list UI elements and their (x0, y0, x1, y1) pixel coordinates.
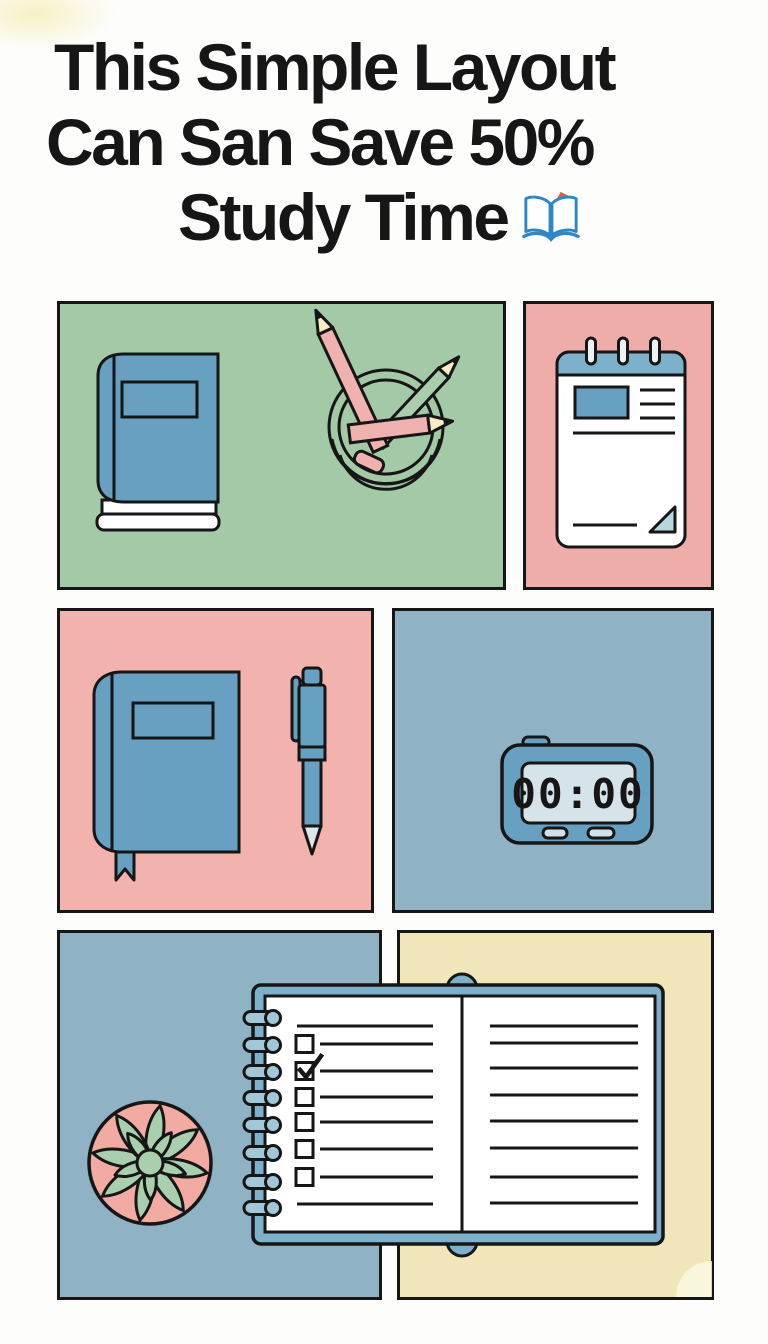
succulent-center (137, 1150, 163, 1176)
title-line-3-text: Study Time (178, 180, 508, 255)
panel-notepad (523, 301, 714, 590)
book-and-pencil-cup-illustration (60, 304, 503, 587)
timer-button-left (543, 828, 567, 838)
succulent-icon (89, 1102, 211, 1224)
pencil-cup-icon (309, 307, 464, 489)
book-label (122, 382, 197, 417)
pen-icon (292, 668, 325, 854)
pen-tip (303, 826, 321, 854)
open-book-emoji (522, 189, 580, 247)
digital-timer-illustration: 00:00 (395, 611, 711, 910)
title-line-3: Study Time (178, 180, 580, 255)
notepad-photo-block (575, 387, 628, 418)
journal-label (133, 703, 213, 738)
journal-and-pen-illustration (60, 611, 371, 910)
timer-button-right (588, 828, 614, 838)
journal-icon (94, 672, 239, 880)
bookmark-ribbon (116, 852, 134, 880)
panel-journal-and-pen (57, 608, 374, 913)
title-line-2: Can San Save 50% (46, 105, 593, 180)
panel-digital-timer: 00:00 (392, 608, 714, 913)
book-icon (97, 354, 219, 530)
panel-book-and-pencil-cup (57, 301, 506, 590)
title-line-1: This Simple Layout (54, 30, 614, 105)
notepad-illustration (526, 304, 711, 587)
open-notebook-illustration (240, 963, 684, 1265)
notebook-pages (265, 996, 655, 1232)
timer-display: 00:00 (511, 770, 644, 818)
pencil-stub (352, 449, 385, 474)
